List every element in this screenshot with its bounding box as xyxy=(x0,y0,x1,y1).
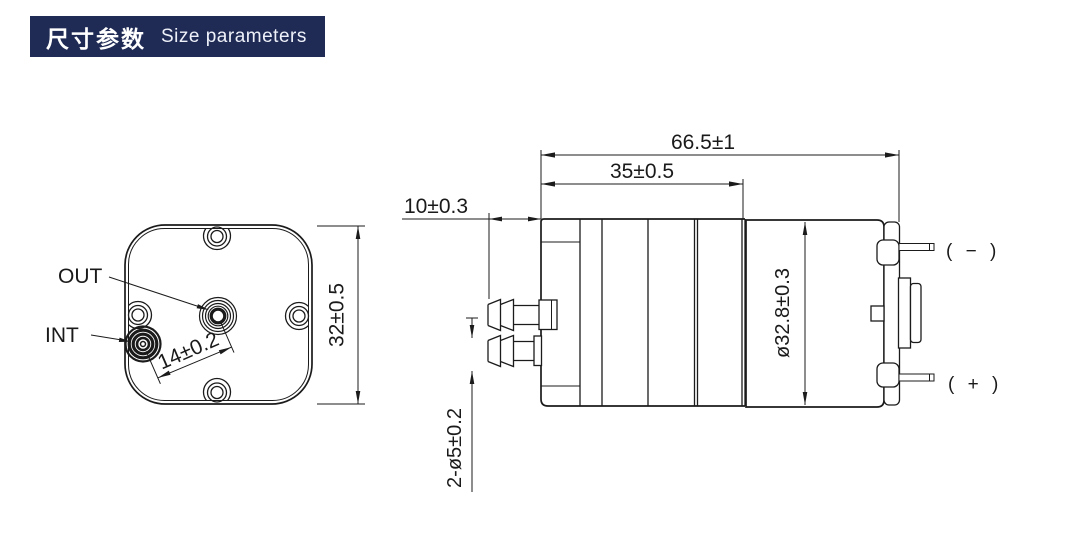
pump-head-body xyxy=(541,219,745,406)
terminal-grommet-positive xyxy=(877,363,899,387)
int-label: INT xyxy=(45,324,79,347)
motor-boss-outer xyxy=(899,278,911,348)
motor-boss-inner xyxy=(911,284,922,343)
dim-port-spacing-text: 14±0.2 xyxy=(154,328,222,375)
dim-barb-diameter: 2-ø5±0.2 xyxy=(444,318,478,492)
hose-barb-int xyxy=(488,336,542,367)
dim-pump-length-text: 35±0.5 xyxy=(610,160,674,183)
hose-barb-out xyxy=(488,300,557,331)
out-label: OUT xyxy=(58,265,103,288)
int-label-group: INT xyxy=(45,324,131,347)
page: 尺寸参数 Size parameters xyxy=(0,0,1072,548)
dim-port-spacing: 14±0.2 xyxy=(146,323,234,384)
dim-barb-diameter-text: 2-ø5±0.2 xyxy=(444,408,466,488)
dim-barb-protrusion-text: 10±0.3 xyxy=(404,195,468,218)
pump-face-outline xyxy=(125,225,312,404)
dim-body-height: 32±0.5 xyxy=(317,226,365,404)
dim-total-length-text: 66.5±1 xyxy=(671,131,735,154)
dim-pump-length: 35±0.5 xyxy=(541,160,743,219)
terminal-positive-label: ( + ) xyxy=(948,374,1002,395)
dim-total-length: 66.5±1 xyxy=(541,131,899,222)
dim-motor-diameter: ø32.8±0.3 xyxy=(772,222,807,405)
mounting-ear-top xyxy=(203,227,230,250)
mounting-ear-left xyxy=(129,301,152,328)
dim-body-height-text: 32±0.5 xyxy=(326,283,349,347)
front-view: OUT INT 14±0.2 xyxy=(45,225,365,404)
mounting-ear-bottom xyxy=(204,379,231,402)
terminal-pin-negative xyxy=(899,244,934,251)
terminal-negative-label: ( − ) xyxy=(946,241,1000,262)
technical-drawing: OUT INT 14±0.2 xyxy=(0,0,1072,548)
side-view: 66.5±1 35±0.5 10±0.3 xyxy=(402,131,1002,492)
out-port xyxy=(200,298,237,335)
out-label-group: OUT xyxy=(58,265,209,310)
terminal-grommet-negative xyxy=(877,240,899,265)
out-leader-line xyxy=(109,277,206,309)
terminal-pin-positive xyxy=(899,374,934,381)
dim-motor-diameter-text: ø32.8±0.3 xyxy=(772,268,794,358)
mounting-ear-right xyxy=(286,303,309,330)
motor-tab xyxy=(871,306,884,321)
dim-barb-protrusion: 10±0.3 xyxy=(402,195,541,299)
